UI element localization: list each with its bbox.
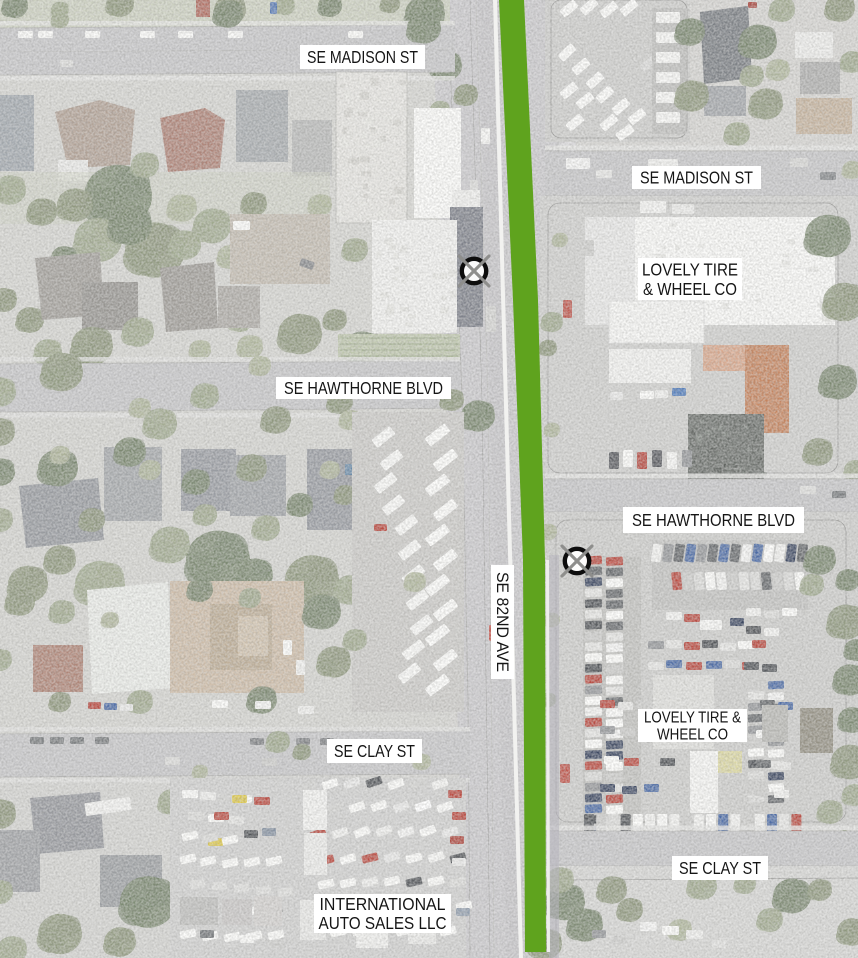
svg-text:LOVELY TIRE &: LOVELY TIRE & [644,709,742,726]
svg-text:WHEEL CO: WHEEL CO [657,726,728,743]
svg-text:SE MADISON ST: SE MADISON ST [640,168,753,188]
svg-text:SE MADISON ST: SE MADISON ST [307,47,418,67]
svg-text:SE HAWTHORNE BLVD: SE HAWTHORNE BLVD [632,510,795,530]
svg-text:INTERNATIONAL: INTERNATIONAL [320,894,446,914]
svg-text:SE HAWTHORNE BLVD: SE HAWTHORNE BLVD [284,378,443,398]
svg-text:SE CLAY ST: SE CLAY ST [334,741,415,761]
svg-text:SE CLAY ST: SE CLAY ST [679,858,761,878]
svg-text:& WHEEL CO: & WHEEL CO [643,279,737,299]
svg-text:AUTO SALES LLC: AUTO SALES LLC [319,913,447,933]
svg-text:SE 82ND AVE: SE 82ND AVE [493,572,512,672]
svg-text:LOVELY TIRE: LOVELY TIRE [642,260,738,280]
